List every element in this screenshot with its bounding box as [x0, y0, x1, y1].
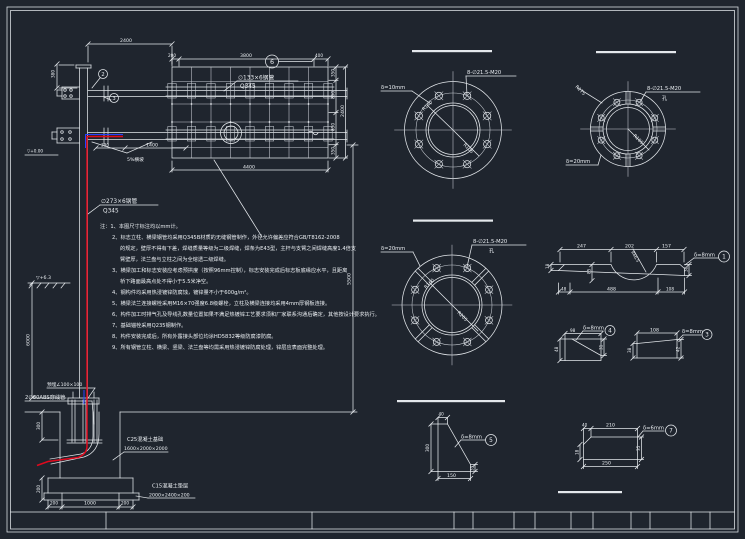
detail4-label: δ=8mm: [583, 326, 604, 332]
detail1-dim-t1: 247: [577, 244, 586, 250]
embedded-angle-label: 预埋∠100×100: [47, 381, 82, 388]
flange-c-r-inner: R205: [456, 310, 469, 323]
flange-c-thickness: δ=20mm: [381, 246, 405, 252]
callout-beam-top-num: 2: [101, 72, 104, 78]
detail7-label: δ=6mm: [643, 426, 664, 432]
beam-pipe-grade-label: Q345: [240, 84, 256, 90]
dim-panel-bottom: 4400: [243, 165, 255, 171]
note-line-3: 的规定，壁厚不得有下差，焊缝质量等级为二级焊缝，焊条为E43型，主杆与支臂之间焊…: [120, 244, 356, 252]
dim-brace-a: 390: [101, 143, 109, 148]
cushion-label-2: 2000×2400×200: [149, 493, 190, 499]
detail5-dim-top: 40: [439, 412, 445, 417]
dim-panel-total: 2400: [340, 105, 346, 117]
dim-clearance: 5500: [347, 273, 353, 285]
ground-elevation-label: ▽+6.3: [36, 275, 51, 281]
detail4-dim-right: 31: [599, 344, 604, 350]
dim-brace-b: 1400: [146, 143, 158, 149]
dim-found-b2: 1000: [84, 501, 96, 507]
detail1-dim-h1: 18: [545, 263, 550, 269]
conduit-label: 2∅80ABS穿线管: [25, 393, 65, 401]
cad-sheet: ∅133×6钢管 Q345 ∅273×6钢管 Q345 ▽+6.3 ▽+0.00…: [0, 0, 745, 539]
note-line-5: 3、横梁加工和标志安装应考虑预拱度（按照96mm控制），标志安装完成后标志板底缘…: [112, 266, 347, 274]
dim-found-b1: 200: [50, 501, 58, 506]
dim-panel-top-left: 200: [168, 53, 176, 58]
pole-pipe-spec-label: ∅273×6钢管: [101, 197, 137, 205]
note-line-8: 5、横梁法兰连接螺栓采用M16×70强度6.8级螺栓，立柱及横梁连接均采用4mm…: [112, 299, 330, 307]
cushion-label-1: C15混凝土垫层: [152, 482, 188, 490]
note-line-6: 桥下路面最高点处不得小于5.5米净空。: [120, 277, 211, 285]
dim-panel-r4: 350: [331, 147, 336, 155]
note-line-4: 臂壁厚，法兰盘与立柱之间为全熔透二级焊缝。: [120, 255, 229, 263]
detail3-dim-left: 38: [627, 347, 632, 353]
detail1-label: δ=8mm: [694, 253, 715, 259]
detail1-dim-b1: 48: [561, 287, 567, 292]
note-line-7: 4、钢构件均采用热浸镀锌防腐蚀，镀锌量不小于600g/m²。: [112, 288, 252, 296]
note-line-1: 注：1、本图尺寸标注均以mm计。: [100, 222, 181, 230]
detail1-dim-b2: 488: [607, 287, 616, 293]
detail-5-texts: δ=8mm 5 40 300 150 35: [425, 412, 493, 480]
detail1-dim-h3: 38: [684, 266, 689, 272]
note-line-9: 6、构件加工时排气孔及导线孔数量位置如果不满足热镀锌工艺要求须和厂家联系沟通后确…: [112, 310, 380, 318]
cable-red: [37, 137, 123, 466]
detail3-dim-right: 42: [676, 346, 681, 352]
flange-c-holes-unit: 孔: [489, 247, 495, 255]
note-line-2: 2、标志立柱、横梁钢管均采用Q345B材质的无缝钢管制作，外径允许偏差应符合GB…: [112, 233, 340, 241]
dim-pole-height: 6000: [26, 334, 32, 346]
generated-linework: [11, 42, 735, 529]
detail-1-texts: δ=8mm 1 247 202 157 48 488 108 18 85 38 …: [545, 244, 726, 293]
flange-c-holes: 8-∅21.5-M20: [473, 239, 507, 245]
dim-panel-top-mid: 3800: [240, 53, 252, 59]
detail-7-texts: δ=6mm 7 40 210 250 18 35: [575, 423, 674, 467]
dim-arm-top: 2400: [120, 38, 132, 44]
callout-beam-side-num: 3: [112, 96, 115, 102]
detail1-num: 1: [722, 255, 726, 261]
foundation-label-2: 1600×2000×2000: [124, 446, 168, 452]
flange-a-thickness: δ=10mm: [381, 85, 405, 91]
elevation-view-texts: ∅133×6钢管 Q345 ∅273×6钢管 Q345 ▽+6.3 ▽+0.00…: [26, 38, 353, 346]
note-line-10: 7、基础锚栓采用Q235钢制作。: [112, 321, 186, 329]
detail7-num: 7: [669, 429, 673, 435]
detail4-num: 4: [608, 329, 612, 335]
dim-panel-top-right: 400: [315, 53, 323, 58]
detail7-dim-bottom: 250: [602, 461, 611, 467]
detail7-dim-left: 18: [575, 449, 580, 455]
detail1-dim-h2: 85: [587, 268, 592, 274]
detail7-dim-t2: 210: [606, 423, 615, 429]
beam-pipe-spec-label: ∅133×6钢管: [238, 74, 274, 82]
note-line-12: 9、所有钢管立柱、横梁、竖梁、法兰盘等均需采用热浸镀锌防腐处理，锌层应表面完整处…: [112, 343, 328, 351]
flange-b-r-inner: R105: [632, 133, 645, 146]
dim-found-b3: 200: [121, 501, 129, 506]
flange-b-thickness: δ=20mm: [566, 159, 590, 165]
foundation-label-1: C25混凝土基础: [127, 435, 163, 443]
flange-b-r-outer: R175: [574, 84, 587, 97]
detail7-dim-right: 35: [636, 445, 641, 451]
detail1-dim-t2: 202: [625, 244, 634, 250]
base-elevation-label: ▽+0.00: [27, 149, 43, 154]
detail5-dim-right: 35: [470, 465, 475, 471]
detail5-num: 5: [489, 438, 493, 444]
detail4-dim-top: 98: [570, 328, 576, 333]
slope-label: 5%横坡: [127, 156, 144, 163]
dim-found-l2: 200: [36, 485, 41, 493]
cad-canvas: ∅133×6钢管 Q345 ∅273×6钢管 Q345 ▽+6.3 ▽+0.00…: [0, 0, 745, 539]
foundation-texts: 预埋∠100×100 2∅80ABS穿线管 C25混凝土基础 1600×2000…: [25, 381, 190, 507]
flange-b-texts: 8-∅21.5-M20 孔 δ=20mm R175 R105: [566, 84, 681, 165]
dim-pole-cap: 380: [51, 70, 56, 78]
detail1-dim-b3: 108: [666, 287, 674, 292]
callout-panel-num: 6: [270, 58, 274, 66]
detail5-dim-bottom: 150: [447, 473, 456, 479]
flange-b-holes-unit: 孔: [662, 94, 668, 102]
note-line-11: 8、构件安装完成后，所有外露接头部位均涂HD5832等级防腐漆防腐。: [112, 332, 276, 340]
notes-block: 注：1、本图尺寸标注均以mm计。 2、标志立柱、横梁钢管均采用Q345B材质的无…: [100, 222, 380, 351]
pole-pipe-grade-label: Q345: [103, 209, 119, 215]
detail1-radius: R66.5: [630, 250, 641, 263]
detail5-dim-left: 300: [425, 444, 430, 452]
flange-b-holes: 8-∅21.5-M20: [647, 86, 681, 92]
detail1-dim-t3: 157: [662, 244, 671, 250]
detail3-label: δ=8mm: [682, 329, 703, 335]
detail4-dim-left: 48: [554, 346, 559, 352]
detail7-dim-t1: 40: [582, 423, 588, 428]
detail5-label: δ=8mm: [461, 435, 482, 441]
flange-a-holes: 8-∅21.5-M20: [467, 70, 501, 76]
dim-panel-r1: 350: [331, 69, 336, 77]
sign-panel-texts: 200 3800 400 4400 350 850 850 350 2400 6: [168, 53, 346, 171]
detail3-num: 3: [705, 333, 709, 339]
dim-found-l1: 300: [36, 422, 41, 430]
flange-c-texts: δ=20mm 8-∅21.5-M20 孔 R160 R205: [381, 239, 507, 323]
dim-panel-r2: 850: [331, 91, 336, 99]
detail3-dim-top: 108: [650, 328, 659, 334]
dim-panel-r3: 850: [331, 123, 336, 131]
